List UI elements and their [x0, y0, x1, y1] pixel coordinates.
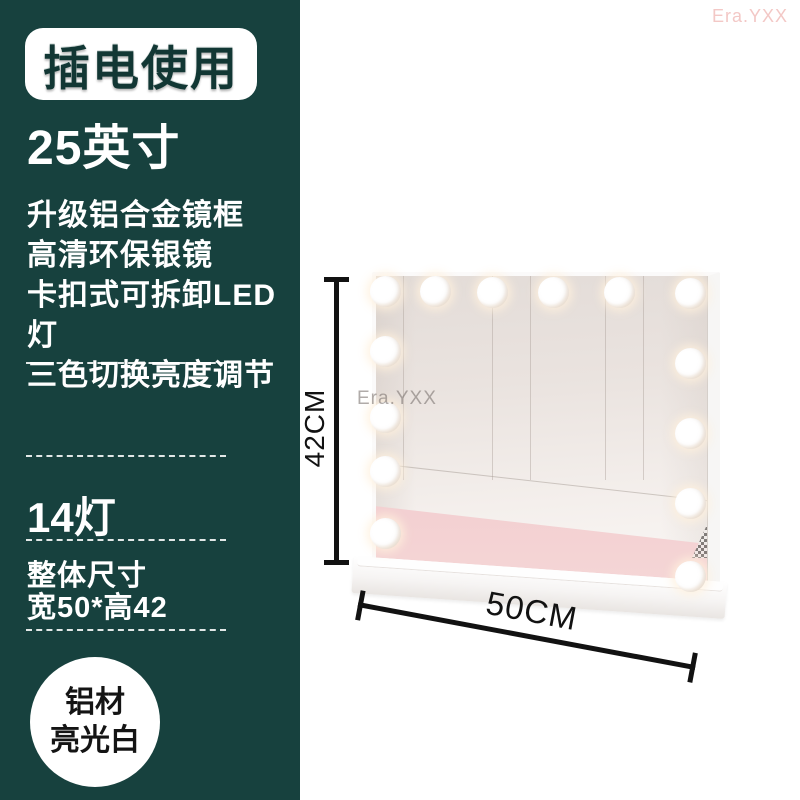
material-line: 亮光白	[50, 722, 140, 760]
feature-item: 升级铝合金镜框	[27, 196, 300, 236]
dashed-divider	[26, 455, 226, 457]
dashed-divider	[26, 539, 226, 541]
reflection-seam	[605, 276, 606, 480]
height-dimension-label: 42CM	[299, 383, 331, 473]
dimensions-title: 整体尺寸	[27, 560, 168, 592]
reflection-seam	[530, 276, 531, 480]
feature-list: 升级铝合金镜框 高清环保银镜 卡扣式可拆卸LED灯 三色切换亮度调节	[27, 196, 300, 396]
brand-watermark: Era.YXX	[712, 6, 788, 27]
reflection-seam	[643, 276, 644, 480]
dashed-divider	[26, 629, 226, 631]
overall-dimensions: 整体尺寸 宽50*高42	[27, 560, 168, 624]
height-dimension-line	[334, 279, 339, 563]
plug-in-use-badge: 插电使用	[25, 28, 257, 100]
reflection-seam	[403, 276, 404, 480]
size-title: 25英寸	[27, 108, 180, 178]
vanity-mirror	[372, 272, 720, 585]
material-badge: 铝材 亮光白	[30, 657, 160, 787]
feature-item: 卡扣式可拆卸LED灯	[27, 276, 300, 356]
mirror-surface	[376, 276, 708, 585]
dimensions-value: 宽50*高42	[27, 592, 168, 624]
material-line: 铝材	[65, 684, 125, 722]
brand-watermark: Era.YXX	[357, 388, 437, 410]
info-panel: 插电使用 25英寸 升级铝合金镜框 高清环保银镜 卡扣式可拆卸LED灯 三色切换…	[0, 0, 300, 800]
dashed-divider	[26, 362, 226, 364]
light-count-label: 14灯	[27, 484, 116, 545]
reflection-seam	[492, 276, 493, 480]
feature-item: 高清环保银镜	[27, 236, 300, 276]
